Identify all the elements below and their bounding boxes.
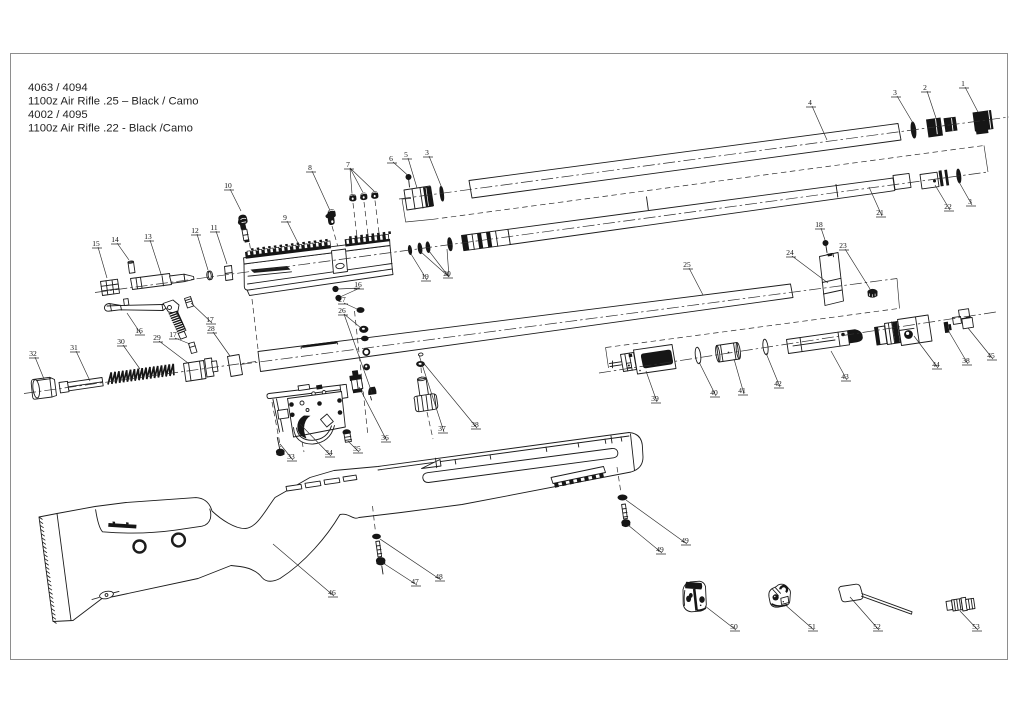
svg-text:28: 28: [207, 324, 215, 333]
svg-text:18: 18: [815, 220, 823, 229]
svg-text:30: 30: [117, 337, 125, 346]
svg-text:48: 48: [435, 572, 443, 581]
svg-text:6: 6: [389, 154, 393, 163]
svg-text:17: 17: [206, 315, 214, 324]
svg-text:40: 40: [710, 388, 718, 397]
svg-text:15: 15: [92, 239, 100, 248]
svg-text:11: 11: [210, 223, 217, 232]
svg-text:35: 35: [353, 444, 361, 453]
svg-text:34: 34: [325, 448, 333, 457]
svg-text:50: 50: [730, 622, 738, 631]
svg-text:3: 3: [968, 197, 972, 206]
svg-text:3: 3: [425, 148, 429, 157]
svg-text:21: 21: [876, 208, 884, 217]
svg-text:51: 51: [808, 622, 816, 631]
svg-text:16: 16: [354, 280, 362, 289]
svg-text:14: 14: [111, 235, 119, 244]
svg-text:13: 13: [144, 232, 152, 241]
svg-text:10: 10: [224, 181, 232, 190]
svg-text:1100z Air Rifle .25 – Black /: 1100z Air Rifle .25 – Black / Camo: [28, 96, 199, 108]
svg-text:1100z Air Rifle .22 - Black /C: 1100z Air Rifle .22 - Black /Camo: [28, 123, 193, 135]
svg-text:4063 / 4094: 4063 / 4094: [28, 82, 88, 94]
svg-text:19: 19: [421, 272, 429, 281]
svg-text:52: 52: [873, 622, 881, 631]
svg-text:8: 8: [308, 163, 312, 172]
svg-text:43: 43: [841, 372, 849, 381]
svg-text:41: 41: [738, 386, 746, 395]
svg-text:49: 49: [656, 545, 664, 554]
svg-text:4002 / 4095: 4002 / 4095: [28, 109, 88, 121]
svg-text:31: 31: [70, 343, 78, 352]
svg-text:44: 44: [932, 360, 940, 369]
svg-text:33: 33: [287, 452, 295, 461]
svg-text:7: 7: [346, 160, 350, 169]
svg-text:23: 23: [839, 241, 847, 250]
svg-text:5: 5: [404, 150, 408, 159]
svg-text:24: 24: [786, 248, 794, 257]
svg-text:26: 26: [338, 306, 346, 315]
svg-text:37: 37: [438, 424, 446, 433]
svg-text:27: 27: [338, 295, 346, 304]
svg-text:17: 17: [169, 330, 177, 339]
svg-text:39: 39: [651, 394, 659, 403]
svg-text:42: 42: [774, 379, 782, 388]
svg-text:3: 3: [893, 88, 897, 97]
svg-text:9: 9: [283, 213, 287, 222]
svg-text:46: 46: [328, 588, 336, 597]
svg-text:25: 25: [683, 260, 691, 269]
svg-text:4: 4: [808, 98, 812, 107]
svg-text:12: 12: [191, 226, 199, 235]
svg-text:2: 2: [923, 83, 927, 92]
svg-text:36: 36: [381, 433, 389, 442]
svg-text:16: 16: [135, 326, 143, 335]
svg-text:45: 45: [987, 351, 995, 360]
svg-text:32: 32: [29, 349, 37, 358]
svg-text:53: 53: [972, 622, 980, 631]
svg-text:38: 38: [471, 420, 479, 429]
svg-text:22: 22: [944, 202, 952, 211]
svg-text:20: 20: [443, 269, 451, 278]
svg-text:38: 38: [962, 356, 970, 365]
svg-text:47: 47: [411, 577, 419, 586]
svg-text:1: 1: [961, 79, 965, 88]
svg-text:49: 49: [681, 536, 689, 545]
svg-text:29: 29: [153, 333, 161, 342]
